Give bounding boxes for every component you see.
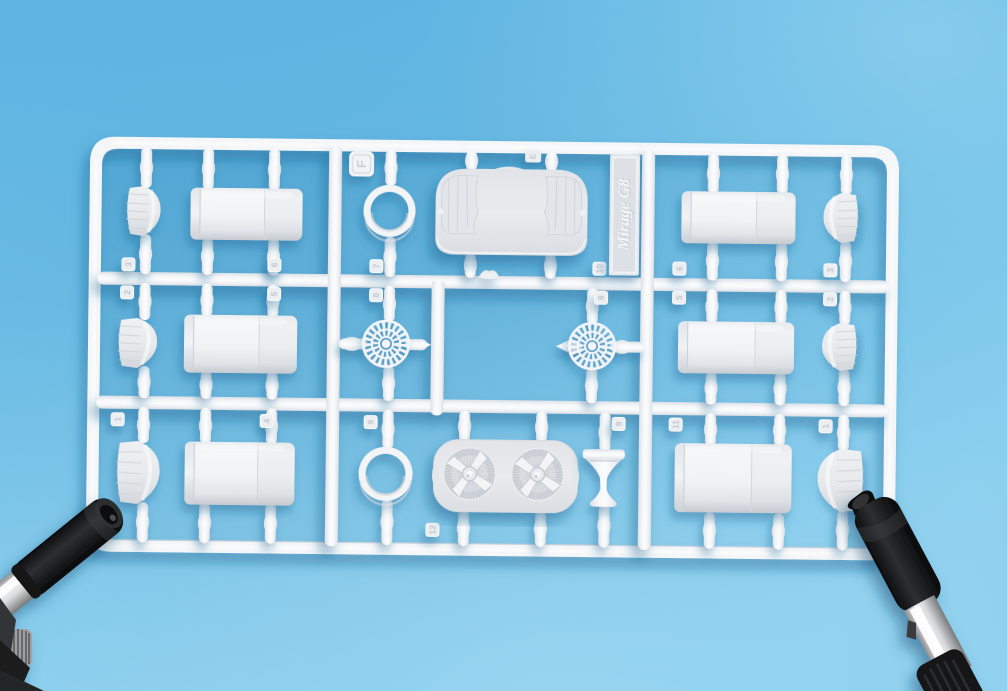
svg-text:2: 2 bbox=[825, 297, 835, 302]
svg-text:8: 8 bbox=[371, 292, 381, 297]
svg-text:E: E bbox=[529, 153, 538, 159]
svg-text:Mirage G8: Mirage G8 bbox=[616, 179, 634, 252]
svg-text:9: 9 bbox=[614, 421, 624, 426]
svg-text:12: 12 bbox=[427, 525, 437, 535]
svg-text:6: 6 bbox=[269, 262, 279, 267]
svg-text:1: 1 bbox=[821, 424, 831, 429]
svg-text:3: 3 bbox=[825, 268, 835, 273]
svg-text:2: 2 bbox=[122, 290, 132, 295]
svg-text:7: 7 bbox=[371, 263, 381, 268]
svg-text:6: 6 bbox=[674, 266, 684, 271]
svg-text:4: 4 bbox=[262, 418, 272, 423]
svg-text:3: 3 bbox=[123, 262, 133, 267]
svg-text:5: 5 bbox=[674, 295, 684, 300]
svg-text:5: 5 bbox=[269, 291, 279, 296]
svg-text:1: 1 bbox=[113, 417, 123, 422]
svg-text:9: 9 bbox=[366, 419, 376, 424]
svg-text:8: 8 bbox=[596, 295, 606, 300]
svg-text:10: 10 bbox=[594, 264, 604, 274]
svg-text:11: 11 bbox=[671, 420, 681, 429]
svg-text:F: F bbox=[354, 160, 369, 168]
